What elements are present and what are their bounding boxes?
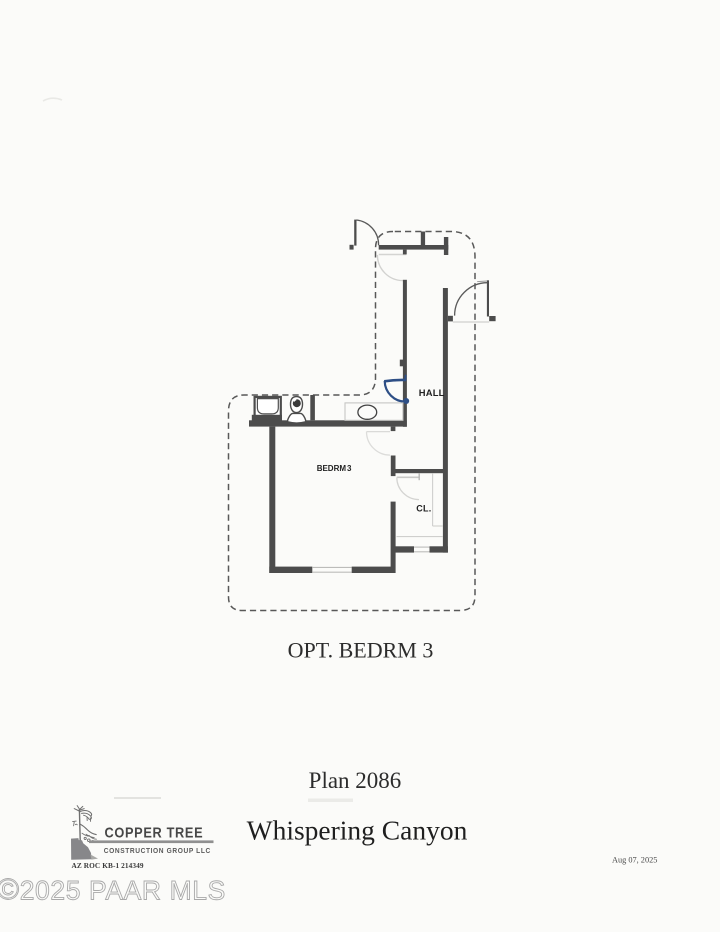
svg-text:©2025 PAAR MLS: ©2025 PAAR MLS	[0, 874, 226, 907]
svg-text:OPT. BEDRM 3: OPT. BEDRM 3	[288, 638, 434, 663]
svg-text:Aug 07, 2025: Aug 07, 2025	[612, 856, 657, 865]
svg-text:Whispering Canyon: Whispering Canyon	[247, 815, 468, 846]
svg-text:CL.: CL.	[416, 504, 431, 514]
svg-text:HALL: HALL	[419, 387, 445, 398]
svg-text:Plan 2086: Plan 2086	[309, 768, 402, 793]
svg-text:3: 3	[347, 464, 352, 473]
svg-text:AZ ROC KB-1 214349: AZ ROC KB-1 214349	[72, 861, 144, 870]
svg-text:CONSTRUCTION GROUP LLC: CONSTRUCTION GROUP LLC	[104, 846, 211, 855]
svg-text:COPPER TREE: COPPER TREE	[105, 823, 204, 840]
svg-text:BEDRM: BEDRM	[317, 464, 347, 473]
